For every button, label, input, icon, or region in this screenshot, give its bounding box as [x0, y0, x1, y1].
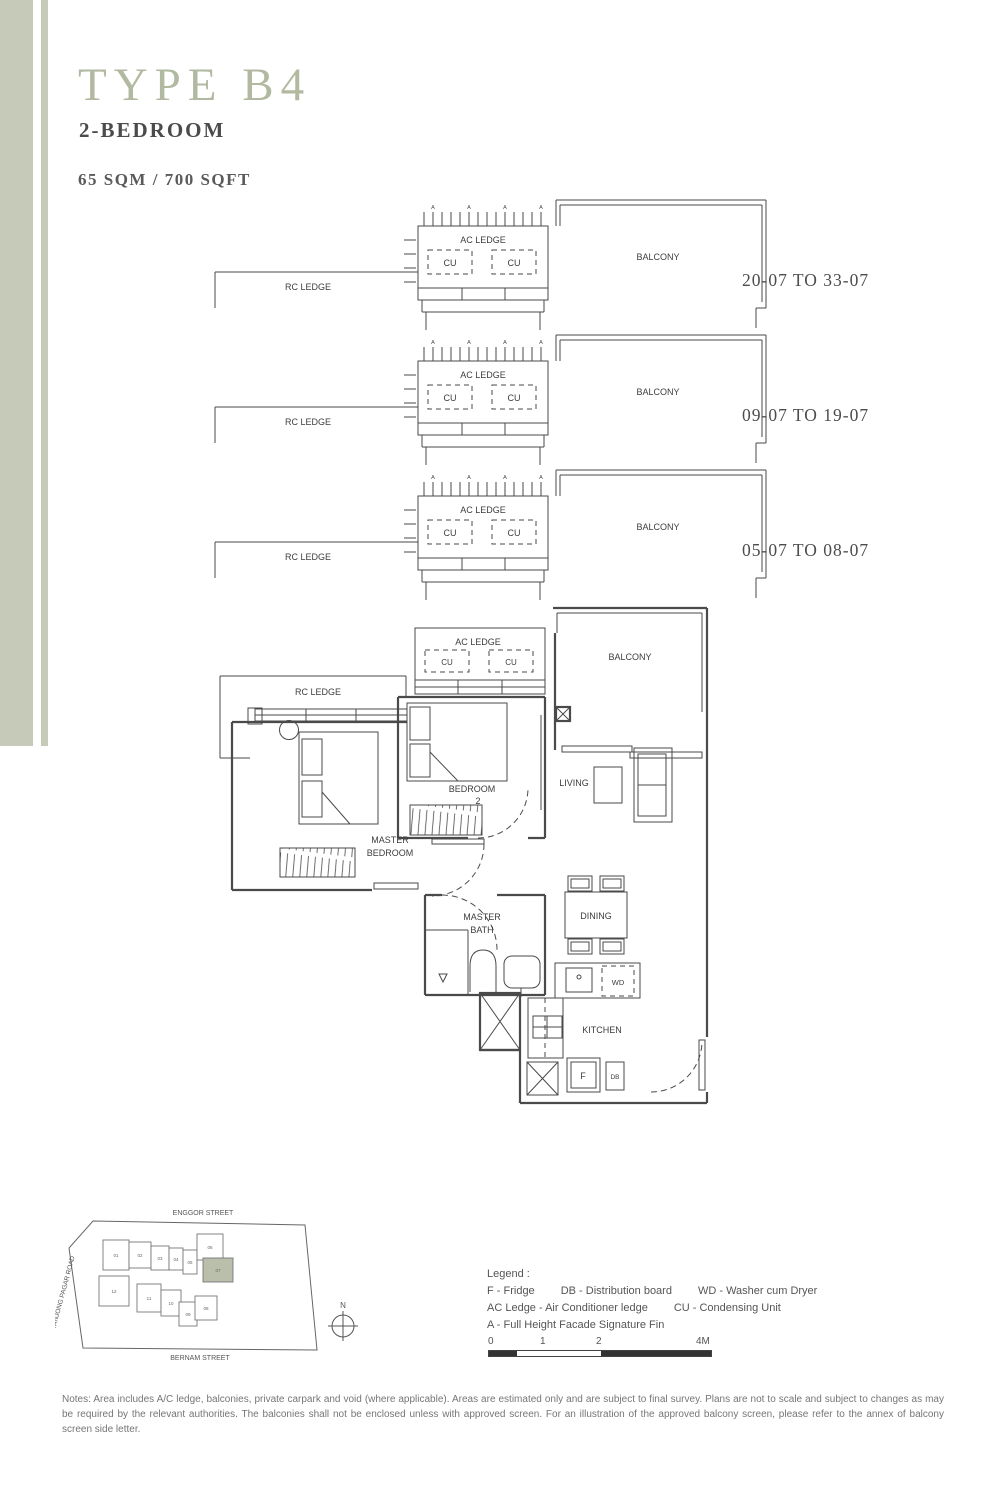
notes-text: Notes: Area includes A/C ledge, balconie… [62, 1392, 944, 1437]
unit-09: 09 [185, 1312, 191, 1317]
dining-label: DINING [580, 911, 612, 921]
stack-diagram-middle [200, 327, 880, 467]
master-bath-label-1: MASTER [463, 912, 501, 922]
floor-range-1: 20-07 TO 33-07 [742, 270, 902, 291]
legend-item-db: DB - Distribution board [561, 1285, 672, 1297]
legend-item-cu: CU - Condensing Unit [674, 1302, 781, 1314]
floor-range-3: 05-07 TO 08-07 [742, 540, 902, 561]
street-bottom: BERNAM STREET [170, 1355, 230, 1362]
accent-bar-wide [0, 0, 33, 746]
living-label: LIVING [559, 778, 589, 788]
stack-diagram-lower [200, 462, 880, 602]
ac-ledge-label: AC LEDGE [455, 637, 501, 647]
legend-item-f: F - Fridge [487, 1285, 535, 1297]
main-floor-plan: AC LEDGE CU CU RC LEDGE BALCONY MASTER B… [210, 600, 710, 1135]
scale-2: 2 [596, 1336, 602, 1347]
scale-4m: 4M [696, 1336, 710, 1347]
legend: Legend : F - FridgeDB - Distribution boa… [487, 1266, 843, 1334]
fridge-label: F [580, 1071, 586, 1081]
scale-1: 1 [540, 1336, 546, 1347]
cu-label: CU [441, 658, 453, 667]
site-buildings [99, 1234, 233, 1326]
unit-12: 12 [111, 1289, 117, 1294]
bedroom2-label-1: BEDROOM [449, 784, 496, 794]
plan-details [220, 613, 705, 1095]
unit-11: 11 [147, 1296, 152, 1301]
site-plan: 01 02 03 04 05 06 07 08 09 10 11 12 ENGG… [55, 1198, 375, 1373]
unit-01: 01 [113, 1253, 119, 1258]
unit-05: 05 [187, 1260, 193, 1265]
street-left: TANJONG PAGAR ROAD [55, 1255, 77, 1330]
legend-item-fin: A - Full Height Facade Signature Fin [487, 1319, 664, 1331]
bedroom2-label-2: 2 [475, 796, 480, 806]
legend-title: Legend : [487, 1266, 843, 1283]
page-title: TYPE B4 [78, 58, 311, 112]
unit-07: 07 [215, 1268, 221, 1273]
legend-item-wd: WD - Washer cum Dryer [698, 1285, 817, 1297]
master-bedroom-label-1: MASTER [371, 835, 409, 845]
unit-08: 08 [203, 1306, 209, 1311]
floorplan-page: TYPE B4 2-BEDROOM 65 SQM / 700 SQFT A A … [0, 0, 1000, 1488]
north-compass: N [328, 1301, 358, 1341]
unit-06: 06 [207, 1245, 213, 1250]
unit-04: 04 [173, 1257, 179, 1262]
unit-area: 65 SQM / 700 SQFT [78, 170, 251, 190]
rc-ledge-label: RC LEDGE [295, 687, 341, 697]
unit-10: 10 [168, 1301, 174, 1306]
wd-label: WD [612, 978, 625, 987]
stack-diagram-upper [200, 192, 880, 332]
legend-item-acledge: AC Ledge - Air Conditioner ledge [487, 1302, 648, 1314]
kitchen-label: KITCHEN [582, 1025, 622, 1035]
scale-0: 0 [488, 1336, 494, 1347]
cu-label: CU [505, 658, 517, 667]
page-subtitle: 2-BEDROOM [79, 118, 225, 143]
unit-02: 02 [137, 1253, 143, 1258]
accent-bar-thin [41, 0, 48, 746]
balcony-label: BALCONY [608, 652, 651, 662]
floor-range-2: 09-07 TO 19-07 [742, 405, 902, 426]
street-top: ENGGOR STREET [173, 1210, 234, 1217]
master-bedroom-label-2: BEDROOM [367, 848, 414, 858]
scale-bar: 0 1 2 4M [488, 1336, 712, 1357]
scale-strip [488, 1350, 712, 1357]
north-label: N [340, 1301, 346, 1310]
unit-03: 03 [157, 1256, 163, 1261]
master-bath-label-2: BATH [470, 925, 493, 935]
db-label: DB [610, 1074, 619, 1081]
